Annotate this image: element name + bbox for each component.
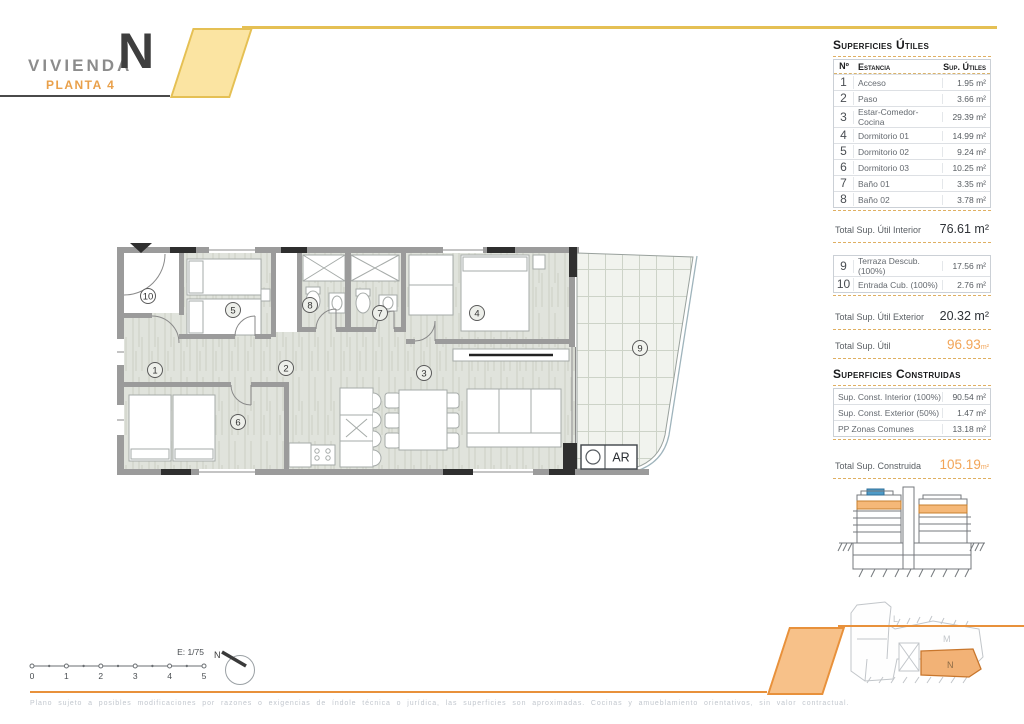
disclaimer-text: Plano sujeto a posibles modificaciones p… xyxy=(30,700,849,707)
floor-plan: AR 1 2 3 4 5 6 7 8 9 10 xyxy=(113,243,703,488)
table-row: PP Zonas Comunes13.18 m² xyxy=(834,420,990,436)
dashed-separator xyxy=(833,478,991,479)
entry-hall-floor xyxy=(124,253,179,313)
svg-text:1: 1 xyxy=(152,366,157,377)
highlighted-floor-right xyxy=(919,505,967,513)
dashed-separator xyxy=(833,385,991,386)
header-yellow-parallelogram xyxy=(170,28,253,98)
svg-text:3: 3 xyxy=(133,671,138,681)
table-row: Sup. Const. Exterior (50%)1.47 m² xyxy=(834,404,990,420)
table-row: 1Acceso1.95 m² xyxy=(834,74,990,90)
table-row: 6Dormitorio 0310.25 m² xyxy=(834,159,990,175)
dashed-separator xyxy=(833,439,991,440)
svg-text:0: 0 xyxy=(30,671,35,681)
unit-letter: N xyxy=(118,26,154,76)
north-compass-icon: N xyxy=(208,646,268,690)
superficies-utiles-title: Superficies Útiles xyxy=(833,38,991,52)
svg-text:5: 5 xyxy=(230,306,235,317)
scale-ruler: E: 1/75 0 1 2 3 4 5 xyxy=(26,645,210,685)
table-row: 3Estar-Comedor-Cocina29.39 m² xyxy=(834,106,990,127)
superficies-utiles-table: Nº Estancia Sup. Útiles 1Acceso1.95 m² 2… xyxy=(833,59,991,208)
dashed-separator xyxy=(833,210,991,211)
table-row: 4Dormitorio 0114.99 m² xyxy=(834,127,990,143)
plan-sheet: VIVIENDA N PLANTA 4 xyxy=(0,0,1024,724)
construidas-table: Sup. Const. Interior (100%)90.54 m² Sup.… xyxy=(833,388,991,437)
areas-panel: Superficies Útiles Nº Estancia Sup. Útil… xyxy=(833,38,991,694)
svg-text:4: 4 xyxy=(474,309,479,320)
exterior-table: 9Terraza Descub. (100%)17.56 m² 10Entrad… xyxy=(833,255,991,293)
svg-text:2: 2 xyxy=(98,671,103,681)
site-key-plan: L M N xyxy=(837,599,987,694)
total-interior: Total Sup. Útil Interior 76.61 m² xyxy=(833,217,991,240)
dashed-separator xyxy=(833,242,991,243)
page-title: VIVIENDA xyxy=(28,56,132,76)
highlighted-floor-left xyxy=(857,501,901,509)
table-header: Nº Estancia Sup. Útiles xyxy=(834,60,990,74)
footer-orange-line-right xyxy=(838,625,1024,627)
svg-text:1: 1 xyxy=(64,671,69,681)
table-row: 2Paso3.66 m² xyxy=(834,90,990,106)
rooftop-element xyxy=(867,489,884,495)
block-n-label: N xyxy=(947,660,954,670)
svg-text:3: 3 xyxy=(421,369,426,380)
svg-text:9: 9 xyxy=(637,344,642,355)
ar-label: AR xyxy=(612,451,629,465)
floor-subtitle: PLANTA 4 xyxy=(46,78,115,92)
total-exterior: Total Sup. Útil Exterior 20.32 m² xyxy=(833,304,991,327)
block-m-label: M xyxy=(943,634,951,644)
svg-text:2: 2 xyxy=(283,364,288,375)
table-row: 7Baño 013.35 m² xyxy=(834,175,990,191)
dashed-separator xyxy=(833,295,991,296)
table-row: 5Dormitorio 029.24 m² xyxy=(834,143,990,159)
closet-floor xyxy=(276,253,297,332)
header-yellow-line xyxy=(242,26,997,29)
building-section-diagram xyxy=(837,485,987,585)
total-construida: Total Sup. Construida 105.19m² xyxy=(833,452,991,476)
block-l-label: L xyxy=(893,614,898,624)
ar-unit: AR xyxy=(581,445,637,469)
svg-text:6: 6 xyxy=(235,418,240,429)
footer-orange-line-left xyxy=(30,691,767,693)
svg-text:10: 10 xyxy=(143,292,154,303)
table-row: 9Terraza Descub. (100%)17.56 m² xyxy=(834,256,990,276)
svg-text:8: 8 xyxy=(307,301,312,312)
dashed-separator xyxy=(833,56,991,57)
header-dark-line xyxy=(0,95,170,97)
table-row: 10Entrada Cub. (100%)2.76 m² xyxy=(834,276,990,292)
svg-text:5: 5 xyxy=(202,671,207,681)
terrace xyxy=(577,253,697,472)
north-label: N xyxy=(214,650,221,660)
scale-label: E: 1/75 xyxy=(177,647,204,657)
superficies-construidas-title: Superficies Construidas xyxy=(833,367,991,381)
table-row: 8Baño 023.78 m² xyxy=(834,191,990,207)
svg-text:7: 7 xyxy=(377,309,382,320)
dashed-separator xyxy=(833,329,991,330)
table-row: Sup. Const. Interior (100%)90.54 m² xyxy=(834,389,990,404)
dashed-separator xyxy=(833,358,991,359)
total-util: Total Sup. Útil 96.93m² xyxy=(833,332,991,356)
svg-text:4: 4 xyxy=(167,671,172,681)
